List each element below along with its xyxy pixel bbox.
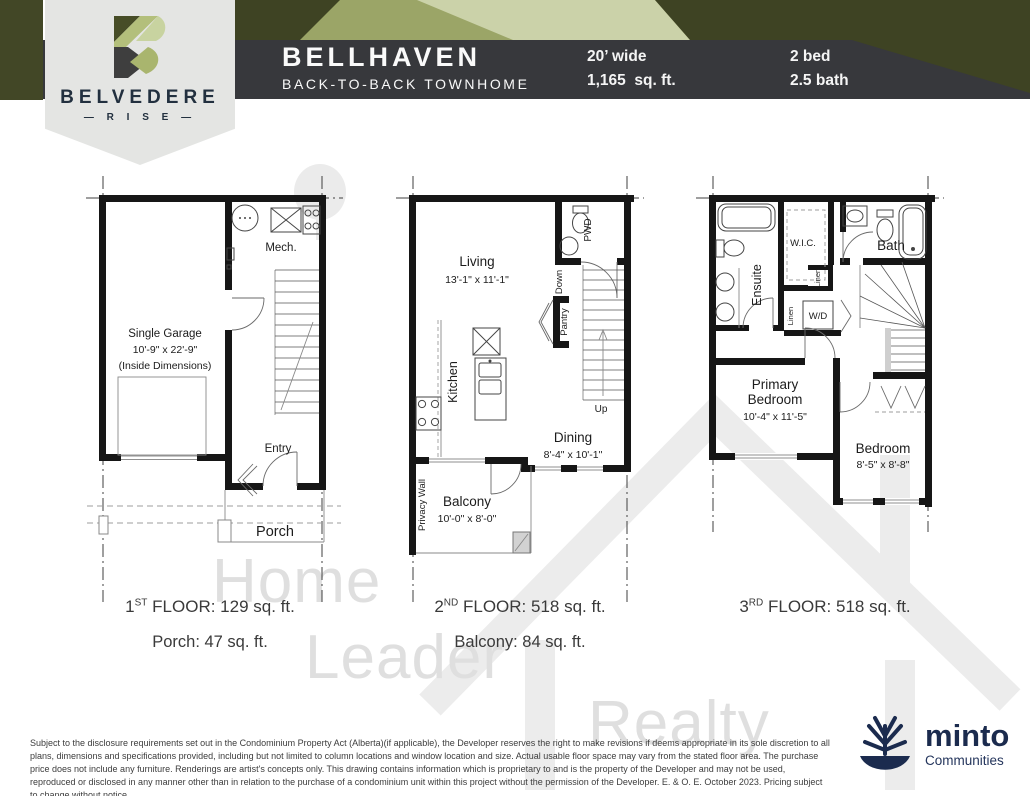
label-garage-note: (Inside Dimensions) <box>119 360 212 372</box>
minto-logo: minto Communities <box>855 713 1009 775</box>
plan1-property-lines <box>86 176 343 602</box>
porch-post <box>218 520 231 542</box>
label-up: Up <box>595 404 608 415</box>
caption-floor-1: 1ST FLOOR: 129 sq. ft. Porch: 47 sq. ft. <box>85 597 335 652</box>
label-garage-dims: 10'-9" x 22'-9" <box>133 344 198 356</box>
plan1-stairs <box>275 270 319 415</box>
label-privacy-wall: Privacy Wall <box>417 479 428 531</box>
model-subtitle: BACK-TO-BACK TOWNHOME <box>282 76 530 92</box>
plan1-garage-door <box>121 456 197 460</box>
label-primary-dims: 10'-4" x 11'-5" <box>743 411 807 423</box>
label-linen-2: Linen <box>786 307 795 325</box>
label-bath: Bath <box>877 238 905 253</box>
caption1-porch: Porch: 47 sq. ft. <box>85 633 335 652</box>
label-wd: W/D <box>809 311 828 322</box>
plan3-stairs <box>860 262 925 372</box>
header-olive-right-top <box>655 0 1030 40</box>
caption2-balcony: Balcony: 84 sq. ft. <box>395 633 645 652</box>
caption-floor-2: 2ND FLOOR: 518 sq. ft. Balcony: 84 sq. f… <box>395 597 645 652</box>
spec-width: 20’ wide <box>587 45 676 69</box>
label-balcony: Balcony <box>443 494 491 509</box>
minto-tree-icon <box>855 713 915 775</box>
label-ensuite: Ensuite <box>750 264 764 306</box>
plan1-doors <box>232 298 297 496</box>
belvedere-logo-icon <box>114 16 166 78</box>
plan1-parking-stall <box>118 377 206 455</box>
brand-name: BELVEDERE <box>45 87 235 109</box>
label-living-dims: 13'-1" x 11'-1" <box>445 274 509 286</box>
floorplan-sheet: Home Leader Realty BELVEDERE — R I S E —… <box>0 0 1030 796</box>
label-garage: Single Garage <box>128 328 202 340</box>
minto-wordmark: minto <box>925 720 1009 751</box>
brand-subname: — R I S E — <box>45 112 235 123</box>
label-dining-dims: 8'-4" x 10'-1" <box>544 449 603 461</box>
model-title: BELLHAVEN <box>282 43 530 73</box>
caption2-num: 2 <box>434 597 443 616</box>
label-bedroom-dims: 8'-5" x 8'-8" <box>857 459 910 471</box>
plan1-porch-outline <box>87 490 341 542</box>
plan2-balcony-outline <box>416 466 531 553</box>
spec-area: 1,165 sq. ft. <box>587 69 676 93</box>
caption3-num: 3 <box>739 597 748 616</box>
floorplan-1st-floor: Mech. Single Garage 10'-9" x 22'-9" (Ins… <box>85 170 345 610</box>
label-porch: Porch <box>256 524 294 540</box>
plan1-walls <box>99 195 326 490</box>
caption-floor-3: 3RD FLOOR: 518 sq. ft. <box>695 597 955 617</box>
plan1-mech-fixtures <box>227 205 320 269</box>
caption2-text: FLOOR: 518 sq. ft. <box>463 597 606 616</box>
label-entry: Entry <box>265 443 292 455</box>
header-olive-left-block <box>0 0 43 100</box>
label-balcony-dims: 10'-0" x 8'-0" <box>438 513 497 525</box>
floorplan-3rd-floor: Ensuite W.I.C. Bath Linen Linen W/D Prim… <box>695 170 945 540</box>
label-dining: Dining <box>554 430 592 445</box>
caption1-text: FLOOR: 129 sq. ft. <box>152 597 295 616</box>
label-primary-1: Primary <box>752 377 799 392</box>
label-pwd: PWD <box>583 218 594 241</box>
label-kitchen: Kitchen <box>446 361 460 403</box>
spec-bath: 2.5 bath <box>790 69 849 93</box>
spec-bed: 2 bed <box>790 45 849 69</box>
legal-disclaimer: Subject to the disclosure requirements s… <box>30 737 832 796</box>
stair-stringer <box>885 328 891 372</box>
floorplan-2nd-floor: Living 13'-1" x 11'-1" PWD Down Pantry U… <box>395 170 645 610</box>
porch-post <box>99 516 108 534</box>
caption3-text: FLOOR: 518 sq. ft. <box>768 597 911 616</box>
plan3-bedroom-closet <box>875 386 925 412</box>
label-wic: W.I.C. <box>790 238 816 249</box>
label-pantry: Pantry <box>559 308 570 336</box>
plan3-ensuite-fixtures <box>716 204 775 328</box>
caption1-ordinal: ST <box>135 597 148 608</box>
plan2-kitchen-fixtures <box>416 320 506 457</box>
caption2-ordinal: ND <box>444 597 458 608</box>
label-mech: Mech. <box>265 242 296 254</box>
label-bedroom: Bedroom <box>856 441 911 456</box>
caption1-num: 1 <box>125 597 134 616</box>
caption3-ordinal: RD <box>749 597 763 608</box>
minto-communities-label: Communities <box>925 753 1009 768</box>
plan2-stairs <box>583 265 624 400</box>
label-living: Living <box>459 254 494 269</box>
label-primary-2: Bedroom <box>748 392 803 407</box>
label-linen-1: Linen <box>813 269 822 287</box>
label-down: Down <box>554 270 565 294</box>
